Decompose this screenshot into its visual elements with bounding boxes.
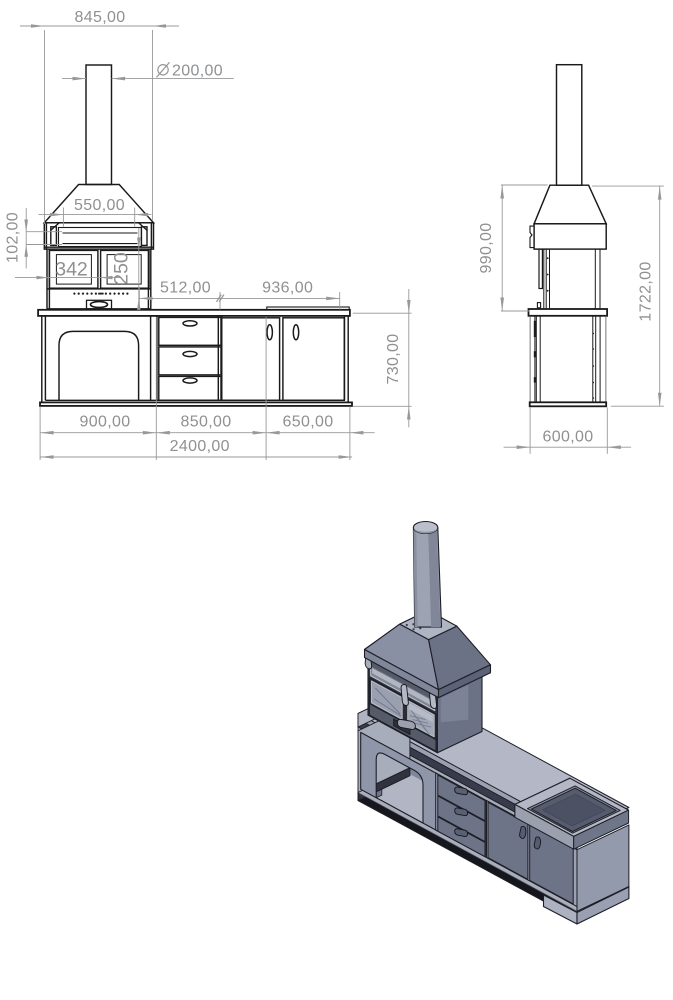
svg-text:845,00: 845,00: [74, 9, 125, 26]
svg-text:512,00: 512,00: [160, 280, 211, 297]
svg-text:2400,00: 2400,00: [170, 438, 230, 455]
svg-text:550,00: 550,00: [74, 197, 125, 214]
svg-text:102,00: 102,00: [5, 212, 22, 263]
svg-text:200,00: 200,00: [172, 63, 223, 80]
svg-text:900,00: 900,00: [79, 414, 130, 431]
svg-text:342: 342: [55, 259, 88, 281]
svg-text:250: 250: [111, 252, 133, 285]
svg-text:1722,00: 1722,00: [638, 261, 655, 321]
svg-text:936,00: 936,00: [262, 280, 313, 297]
svg-text:730,00: 730,00: [385, 333, 402, 384]
svg-text:600,00: 600,00: [542, 429, 593, 446]
svg-text:650,00: 650,00: [282, 414, 333, 431]
svg-text:850,00: 850,00: [180, 414, 231, 431]
svg-text:990,00: 990,00: [478, 222, 495, 273]
